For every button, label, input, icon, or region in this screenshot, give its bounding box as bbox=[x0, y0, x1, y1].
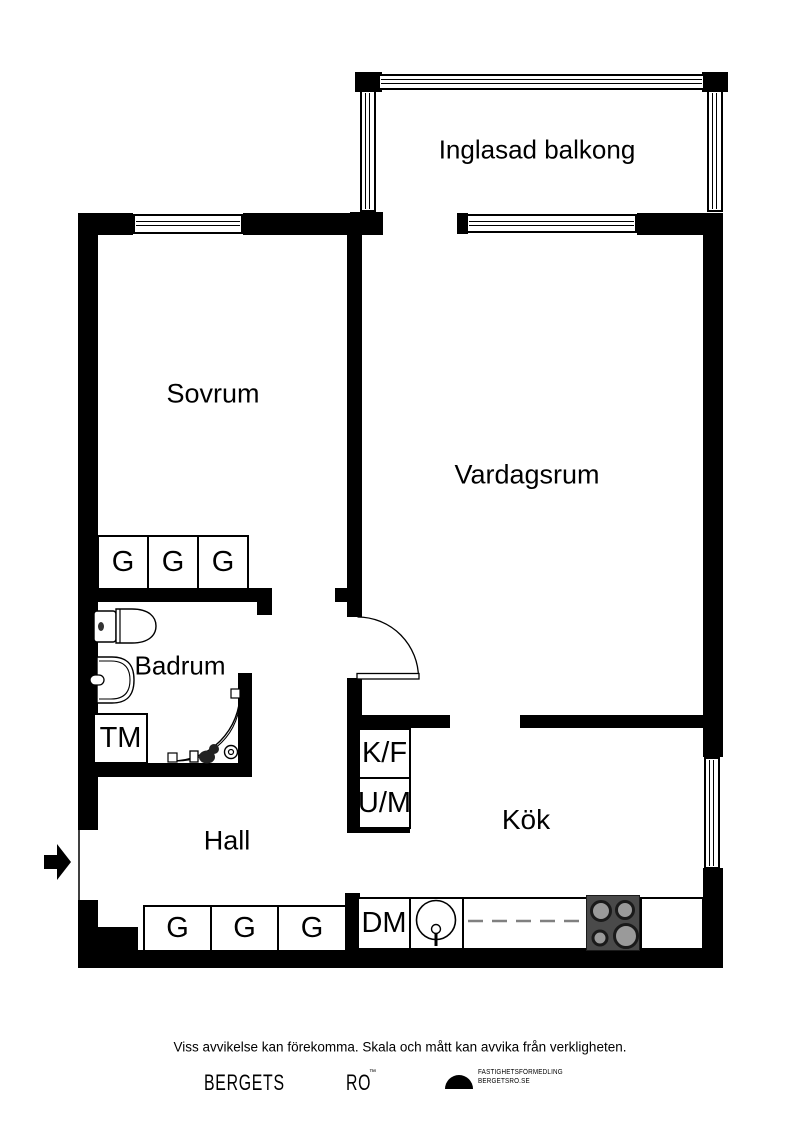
glazing-pane-icon bbox=[381, 79, 702, 84]
wall-bath-bottom bbox=[78, 763, 252, 777]
shower-door-arc-inner bbox=[177, 698, 240, 761]
bath-sink-inner bbox=[99, 661, 130, 699]
disclaimer-text: Viss avvikelse kan förekomma. Skala och … bbox=[174, 1040, 627, 1055]
wardrobe-cabinet: G bbox=[97, 535, 149, 590]
fridge-freezer-box: K/F bbox=[358, 728, 411, 779]
kitchen-label: Kök bbox=[502, 804, 550, 836]
wall-bedroom-stub bbox=[257, 598, 272, 615]
bathroom-label: Badrum bbox=[134, 651, 225, 682]
dishwasher-box: DM bbox=[357, 897, 411, 950]
wall-balcony-corner-right bbox=[702, 72, 728, 92]
kitchen-sink-box bbox=[409, 897, 464, 950]
shower-drain-center bbox=[229, 750, 234, 755]
stove-box bbox=[586, 895, 640, 951]
washing-machine-box: TM bbox=[93, 713, 148, 764]
wardrobe-cabinet: G bbox=[143, 905, 212, 952]
wall-interior-tick bbox=[335, 588, 347, 602]
wardrobe-label: G bbox=[166, 912, 189, 945]
kitchen-window bbox=[704, 757, 720, 869]
brand-tagline-line1: FASTIGHETSFÖRMEDLING bbox=[478, 1069, 563, 1076]
balcony-glazing-right bbox=[707, 90, 723, 212]
wall-bottom bbox=[78, 950, 723, 968]
wardrobe-cabinet: G bbox=[277, 905, 347, 952]
wall-top-left bbox=[78, 213, 133, 235]
hall-wardrobe-row: G G G bbox=[143, 905, 347, 952]
shower-door-arc-outer bbox=[172, 693, 240, 761]
shower-handle bbox=[209, 744, 219, 754]
washing-machine-label: TM bbox=[100, 722, 142, 755]
bedroom-window bbox=[133, 214, 243, 234]
bath-sink-outer bbox=[97, 657, 134, 703]
wardrobe-label: G bbox=[233, 912, 256, 945]
window-pane-icon bbox=[709, 760, 714, 866]
glazing-pane-icon bbox=[712, 93, 717, 209]
wall-bedroom-bottom bbox=[78, 588, 272, 602]
shower-head bbox=[199, 751, 215, 764]
window-pane-icon bbox=[469, 221, 634, 226]
wardrobe-label: G bbox=[301, 912, 324, 945]
wall-balcony-corner-bottom bbox=[350, 212, 383, 235]
window-pane-icon bbox=[136, 221, 240, 226]
brand-logo-icon bbox=[445, 1075, 473, 1089]
brand-name-secondary: RO bbox=[346, 1070, 371, 1096]
wall-right-lower bbox=[703, 868, 723, 968]
door-swing-arc bbox=[358, 617, 419, 678]
balcony-glazing-top bbox=[378, 74, 705, 90]
kitchen-counter-box bbox=[462, 897, 588, 950]
door-leaf bbox=[357, 674, 419, 680]
entrance-arrow-icon bbox=[44, 844, 71, 880]
balcony-glazing-left bbox=[360, 90, 376, 212]
fridge-freezer-label: K/F bbox=[362, 737, 407, 770]
living-room-window bbox=[466, 214, 637, 233]
bedroom-label: Sovrum bbox=[166, 379, 259, 410]
wall-right-upper bbox=[703, 213, 723, 757]
wall-entry-step bbox=[98, 927, 138, 952]
wardrobe-cabinet: G bbox=[147, 535, 199, 590]
shower-drain bbox=[225, 746, 238, 759]
dishwasher-label: DM bbox=[361, 907, 406, 940]
wardrobe-label: G bbox=[112, 546, 135, 579]
balcony-label: Inglasad balkong bbox=[439, 135, 636, 166]
wall-kitchen-top-left bbox=[362, 715, 450, 728]
wardrobe-cabinet: G bbox=[210, 905, 279, 952]
brand-trademark: ™ bbox=[369, 1069, 376, 1076]
floor-plan: G G G TM K/F U/M G G G DM Inglasad balko… bbox=[0, 0, 800, 1131]
kitchen-counter-end-box bbox=[640, 897, 704, 950]
wall-bath-right bbox=[238, 673, 252, 777]
wardrobe-label: G bbox=[162, 546, 185, 579]
oven-microwave-label: U/M bbox=[358, 787, 411, 820]
living-room-label: Vardagsrum bbox=[454, 460, 599, 491]
glazing-pane-icon bbox=[365, 93, 370, 209]
wall-kitchen-top-right bbox=[520, 715, 703, 728]
wall-interior-upper bbox=[347, 235, 362, 617]
shower-door-end bbox=[168, 753, 177, 762]
bedroom-wardrobe-row: G G G bbox=[97, 535, 249, 590]
brand-name-primary: BERGETS bbox=[204, 1070, 285, 1096]
shower-mixer bbox=[190, 751, 198, 762]
toilet-bowl bbox=[116, 609, 156, 643]
toilet-button bbox=[98, 622, 104, 631]
wardrobe-cabinet: G bbox=[197, 535, 249, 590]
oven-microwave-box: U/M bbox=[358, 777, 411, 829]
wardrobe-label: G bbox=[212, 546, 235, 579]
hall-label: Hall bbox=[204, 826, 251, 857]
brand-tagline-line2: BERGETSRO.SE bbox=[478, 1078, 530, 1085]
